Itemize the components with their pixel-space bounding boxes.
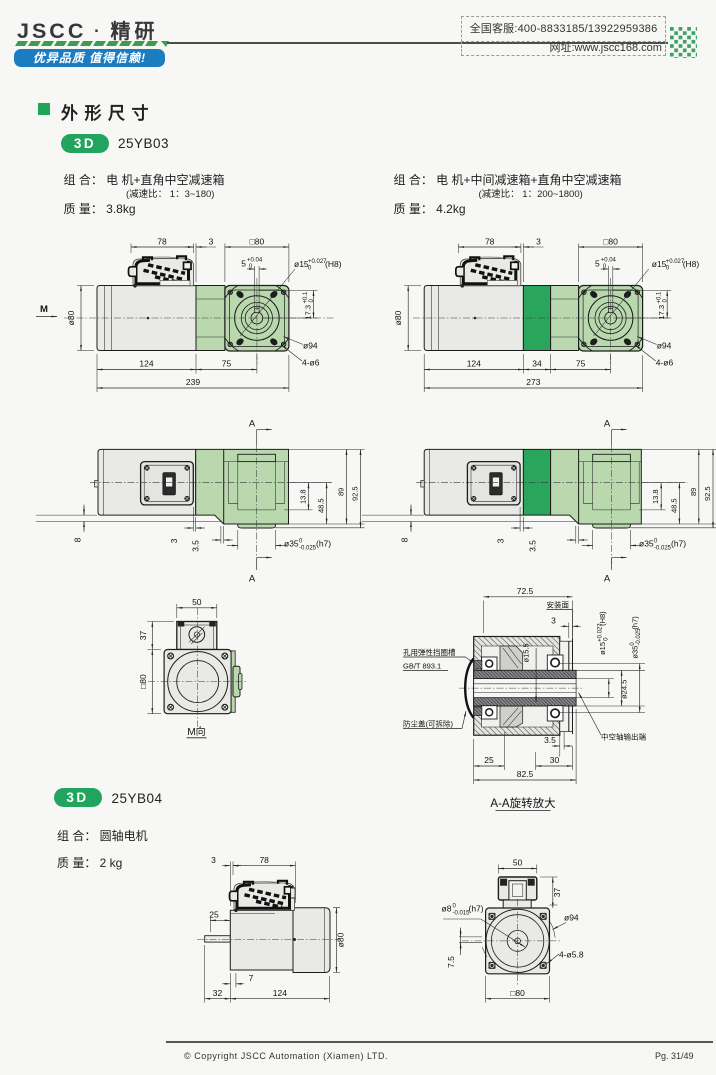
svg-text:□80: □80 [250,237,265,247]
svg-text:92.5: 92.5 [351,486,360,501]
svg-text:M: M [40,304,48,315]
svg-text:防尘盖(可拆除): 防尘盖(可拆除) [403,719,453,729]
svg-text:ø94: ø94 [657,341,672,351]
svg-text:75: 75 [222,359,232,369]
svg-text:0: 0 [663,299,669,303]
svg-text:(h7): (h7) [469,904,484,914]
svg-text:□80: □80 [603,237,618,247]
svg-text:ø94: ø94 [564,913,579,923]
svg-text:3: 3 [211,855,216,865]
svg-text:48.5: 48.5 [317,498,326,513]
svg-text:50: 50 [513,858,523,868]
svg-text:(H8): (H8) [325,259,342,269]
svg-text:4-ø6: 4-ø6 [302,358,320,368]
svg-text:ø80: ø80 [335,932,345,947]
svg-text:5: 5 [241,259,246,269]
svg-text:32: 32 [213,988,223,998]
svg-text:ø15: ø15 [598,642,607,655]
svg-text:13.8: 13.8 [299,489,308,504]
svg-text:0: 0 [299,539,303,545]
svg-text:78: 78 [485,237,495,247]
svg-text:50: 50 [192,597,202,607]
svg-text:37: 37 [138,631,148,641]
svg-text:3.5: 3.5 [528,540,538,552]
svg-text:25: 25 [209,910,219,920]
svg-text:(h7): (h7) [671,539,686,549]
svg-text:3: 3 [536,237,541,247]
svg-text:17.3: 17.3 [657,305,666,320]
svg-text:ø94: ø94 [303,341,318,351]
svg-text:8: 8 [400,537,410,542]
svg-text:-0.025: -0.025 [654,546,672,552]
svg-text:ø8: ø8 [442,904,452,914]
svg-text:124: 124 [139,359,153,369]
svg-text:+0.04: +0.04 [247,258,263,264]
svg-text:124: 124 [467,359,481,369]
svg-text:13.8: 13.8 [651,489,660,504]
svg-text:0: 0 [453,904,457,910]
svg-text:□80: □80 [510,988,525,998]
svg-text:7: 7 [249,973,254,983]
svg-text:ø80: ø80 [66,310,76,325]
svg-text:4-ø6: 4-ø6 [656,358,674,368]
svg-text:3: 3 [209,237,214,247]
svg-text:ø35: ø35 [639,539,654,549]
svg-text:A: A [249,574,256,585]
svg-text:ø24.5: ø24.5 [619,680,628,699]
svg-text:(H8): (H8) [683,259,700,269]
svg-text:+0.04: +0.04 [601,258,617,264]
svg-text:ø35: ø35 [631,646,640,659]
svg-text:5: 5 [595,259,600,269]
svg-text:0: 0 [309,299,315,303]
svg-text:48.5: 48.5 [669,498,678,513]
svg-text:92.5: 92.5 [703,486,712,501]
svg-text:ø15: ø15 [652,259,667,269]
svg-text:ø35: ø35 [284,539,299,549]
svg-text:A: A [604,574,611,585]
svg-text:82.5: 82.5 [517,769,534,779]
svg-text:ø15.5: ø15.5 [522,643,531,662]
svg-text:72.5: 72.5 [517,586,534,596]
svg-text:34: 34 [532,359,542,369]
svg-text:GB/T 893.1: GB/T 893.1 [403,662,441,671]
svg-text:37: 37 [552,888,562,898]
svg-text:ø15: ø15 [294,259,309,269]
svg-text:239: 239 [186,377,200,387]
svg-text:(h7): (h7) [316,539,331,549]
svg-text:(h7): (h7) [631,616,640,630]
svg-text:M向: M向 [187,725,205,738]
svg-text:0: 0 [666,266,670,272]
svg-text:-0.025: -0.025 [299,546,317,552]
svg-text:8: 8 [73,537,83,542]
svg-text:3.5: 3.5 [191,540,201,552]
svg-text:中空轴输出端: 中空轴输出端 [601,732,646,742]
svg-text:(H8): (H8) [598,611,607,626]
svg-text:A: A [249,419,256,430]
svg-text:273: 273 [526,377,540,387]
svg-text:0: 0 [603,637,609,641]
svg-text:安装面: 安装面 [547,600,570,610]
svg-text:A-A旋转放大: A-A旋转放大 [490,796,556,810]
svg-text:0: 0 [308,266,312,272]
svg-text:7.5: 7.5 [446,956,456,968]
svg-text:0: 0 [654,539,658,545]
svg-text:30: 30 [550,755,560,765]
svg-text:3: 3 [496,538,506,543]
svg-text:孔用弹性挡圈槽: 孔用弹性挡圈槽 [403,647,456,657]
svg-text:17.3: 17.3 [304,305,313,320]
svg-text:89: 89 [689,488,698,496]
svg-text:3.5: 3.5 [544,735,556,745]
svg-text:ø80: ø80 [393,310,403,325]
svg-text:124: 124 [273,988,287,998]
svg-text:3: 3 [551,615,556,625]
svg-text:89: 89 [337,488,346,496]
svg-text:4-ø5.8: 4-ø5.8 [559,950,584,960]
svg-text:78: 78 [157,237,167,247]
svg-text:25: 25 [484,755,494,765]
svg-text:75: 75 [576,359,586,369]
svg-text:□80: □80 [138,674,148,689]
svg-text:A: A [604,419,611,430]
svg-text:3: 3 [169,538,179,543]
svg-text:78: 78 [259,855,269,865]
